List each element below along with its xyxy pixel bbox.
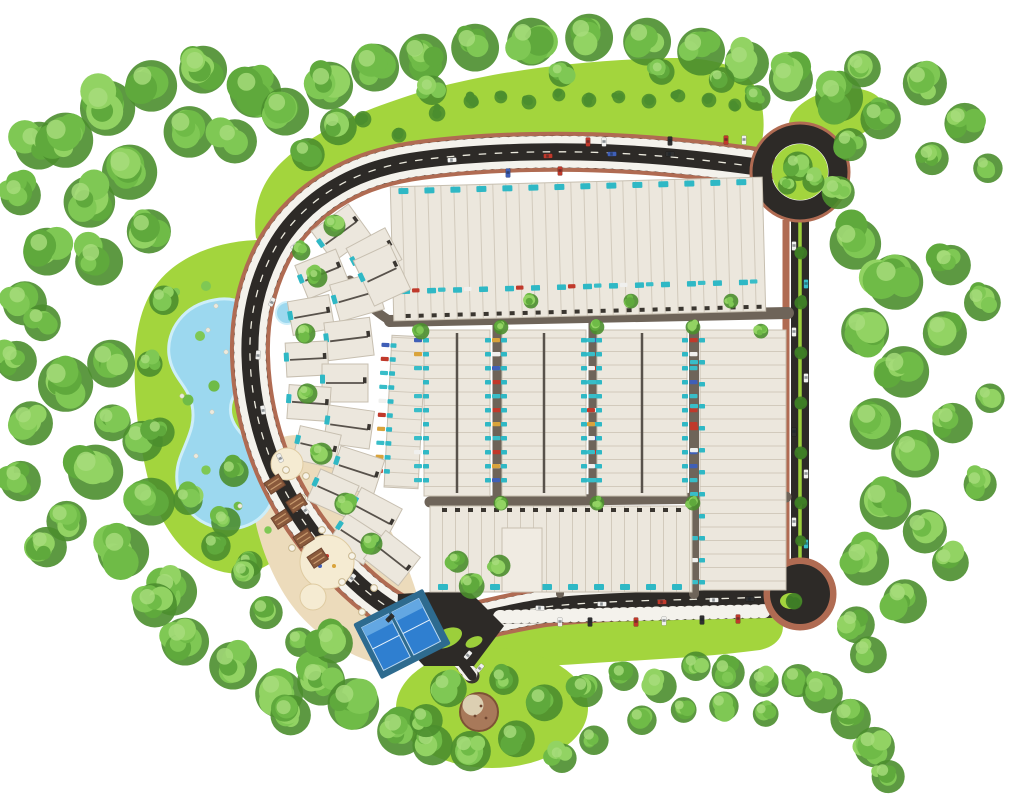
tree — [123, 478, 175, 526]
tree — [964, 465, 997, 501]
beach-umbrella — [349, 553, 356, 560]
tree — [850, 398, 902, 450]
pebble — [194, 454, 198, 458]
tree — [399, 34, 447, 83]
tree — [149, 286, 178, 315]
tree — [494, 91, 507, 104]
tree — [295, 323, 315, 343]
tree — [821, 176, 854, 209]
tree — [304, 60, 353, 109]
tree — [844, 50, 881, 87]
tree — [671, 697, 697, 723]
tree — [923, 311, 967, 355]
car — [597, 602, 606, 607]
beach-umbrella — [359, 609, 366, 616]
tree — [250, 596, 283, 629]
tree — [749, 666, 778, 697]
tree — [127, 209, 171, 253]
car — [586, 138, 591, 147]
tree — [450, 731, 490, 771]
tree — [964, 282, 1001, 321]
strip-1 — [414, 330, 501, 496]
tree — [494, 496, 509, 511]
tree — [975, 384, 1004, 413]
tree — [841, 308, 889, 358]
pebble — [206, 328, 210, 332]
car — [255, 350, 260, 359]
tree — [769, 52, 813, 102]
tree — [709, 692, 738, 722]
play-equipment — [332, 564, 336, 568]
tree — [794, 497, 807, 510]
car — [543, 154, 552, 159]
tree — [0, 340, 37, 382]
shrub — [208, 380, 219, 391]
tree — [410, 704, 443, 737]
tree — [64, 170, 116, 228]
tree — [903, 509, 947, 553]
tree — [840, 532, 890, 586]
tree — [786, 593, 803, 610]
tree — [323, 215, 345, 237]
car — [792, 242, 797, 251]
tree — [206, 117, 257, 163]
tree — [159, 618, 209, 666]
row-houses-north — [390, 177, 765, 321]
tree — [74, 232, 123, 286]
tree — [641, 669, 676, 704]
car — [607, 152, 616, 157]
tree — [944, 103, 986, 143]
tree — [131, 583, 177, 627]
hut-detail — [485, 717, 488, 720]
tree — [891, 430, 939, 478]
tree — [926, 243, 971, 285]
tree — [94, 404, 131, 441]
tree — [642, 94, 657, 109]
tree — [209, 640, 257, 690]
tree — [231, 560, 260, 589]
playground-small-circle — [300, 584, 326, 610]
curved-house — [322, 317, 374, 361]
tree — [297, 383, 317, 403]
pebble — [210, 410, 214, 414]
pebble — [238, 504, 242, 508]
tree — [63, 445, 123, 500]
car — [658, 600, 667, 605]
car — [700, 616, 705, 625]
tree — [522, 95, 537, 110]
tree — [38, 356, 93, 412]
beach-umbrella — [289, 545, 296, 552]
car — [804, 374, 809, 383]
beach-umbrella — [319, 527, 326, 534]
beach-umbrella — [371, 585, 378, 592]
tree — [93, 523, 149, 580]
beach-umbrella — [283, 467, 290, 474]
tree — [794, 247, 807, 260]
car — [742, 136, 747, 145]
car — [447, 157, 456, 162]
tree — [494, 320, 509, 335]
tree — [565, 14, 613, 62]
car — [668, 137, 673, 146]
car — [602, 138, 607, 147]
car — [724, 136, 729, 145]
tree — [46, 501, 86, 541]
strip-3 — [587, 330, 698, 496]
beach-umbrella — [339, 579, 346, 586]
tree — [328, 678, 380, 730]
shrub — [201, 281, 211, 291]
tree — [712, 654, 745, 689]
tree — [270, 695, 310, 736]
shrub — [264, 526, 271, 533]
pebble — [224, 350, 228, 354]
tree — [87, 340, 135, 388]
car — [662, 617, 667, 626]
hut-detail — [480, 705, 483, 708]
tree — [392, 128, 407, 143]
shrub — [195, 331, 205, 341]
beach-umbrella — [303, 473, 310, 480]
tree — [23, 227, 73, 276]
car — [792, 328, 797, 337]
tree — [459, 573, 485, 599]
pebble — [214, 304, 218, 308]
tree — [320, 108, 357, 145]
car — [506, 169, 511, 178]
tree — [627, 706, 656, 735]
car — [558, 618, 563, 627]
tree — [451, 24, 499, 72]
car — [558, 167, 563, 176]
car — [588, 618, 593, 627]
tree — [915, 142, 949, 175]
strip-2 — [492, 330, 597, 496]
tree — [526, 684, 563, 721]
shrub — [201, 465, 210, 474]
tree — [794, 447, 807, 460]
car — [736, 615, 741, 624]
tree — [795, 535, 806, 546]
tree — [874, 346, 929, 398]
tree — [608, 661, 638, 690]
villa-column — [690, 330, 786, 590]
south-parking-stripes — [500, 611, 770, 617]
tree — [0, 170, 41, 216]
tree — [745, 85, 771, 111]
tree — [0, 461, 41, 501]
car — [666, 152, 675, 157]
car — [634, 618, 639, 627]
housing-blocks — [374, 177, 786, 592]
tree — [778, 176, 796, 194]
car — [804, 280, 809, 289]
tree — [859, 254, 923, 309]
hut-detail — [474, 715, 477, 718]
tree — [973, 154, 1002, 183]
pebble — [180, 394, 184, 398]
tree — [681, 652, 710, 681]
tree — [355, 111, 372, 128]
tree — [579, 726, 608, 755]
tree — [360, 533, 382, 555]
car — [792, 518, 797, 527]
site-plan-render — [0, 0, 1024, 800]
tree — [932, 403, 973, 443]
car — [804, 470, 809, 479]
tree — [23, 304, 61, 341]
tree — [880, 579, 927, 623]
tree — [903, 61, 947, 106]
tree — [590, 496, 605, 511]
tree — [753, 700, 779, 727]
tree — [623, 18, 671, 66]
tree — [351, 43, 399, 91]
tree — [8, 401, 53, 445]
tree — [261, 88, 309, 136]
tree — [794, 347, 807, 360]
tree — [850, 636, 887, 673]
tree — [624, 294, 639, 309]
master-plan-canvas — [0, 0, 1024, 800]
tree — [860, 476, 912, 529]
tree — [709, 67, 735, 93]
car — [710, 598, 719, 603]
tree — [702, 93, 717, 108]
tree — [498, 720, 535, 757]
car — [792, 428, 797, 437]
tree — [794, 397, 807, 410]
tree — [724, 294, 739, 309]
tree — [179, 46, 227, 94]
tree — [505, 18, 558, 66]
car — [746, 597, 755, 602]
car — [535, 605, 544, 610]
